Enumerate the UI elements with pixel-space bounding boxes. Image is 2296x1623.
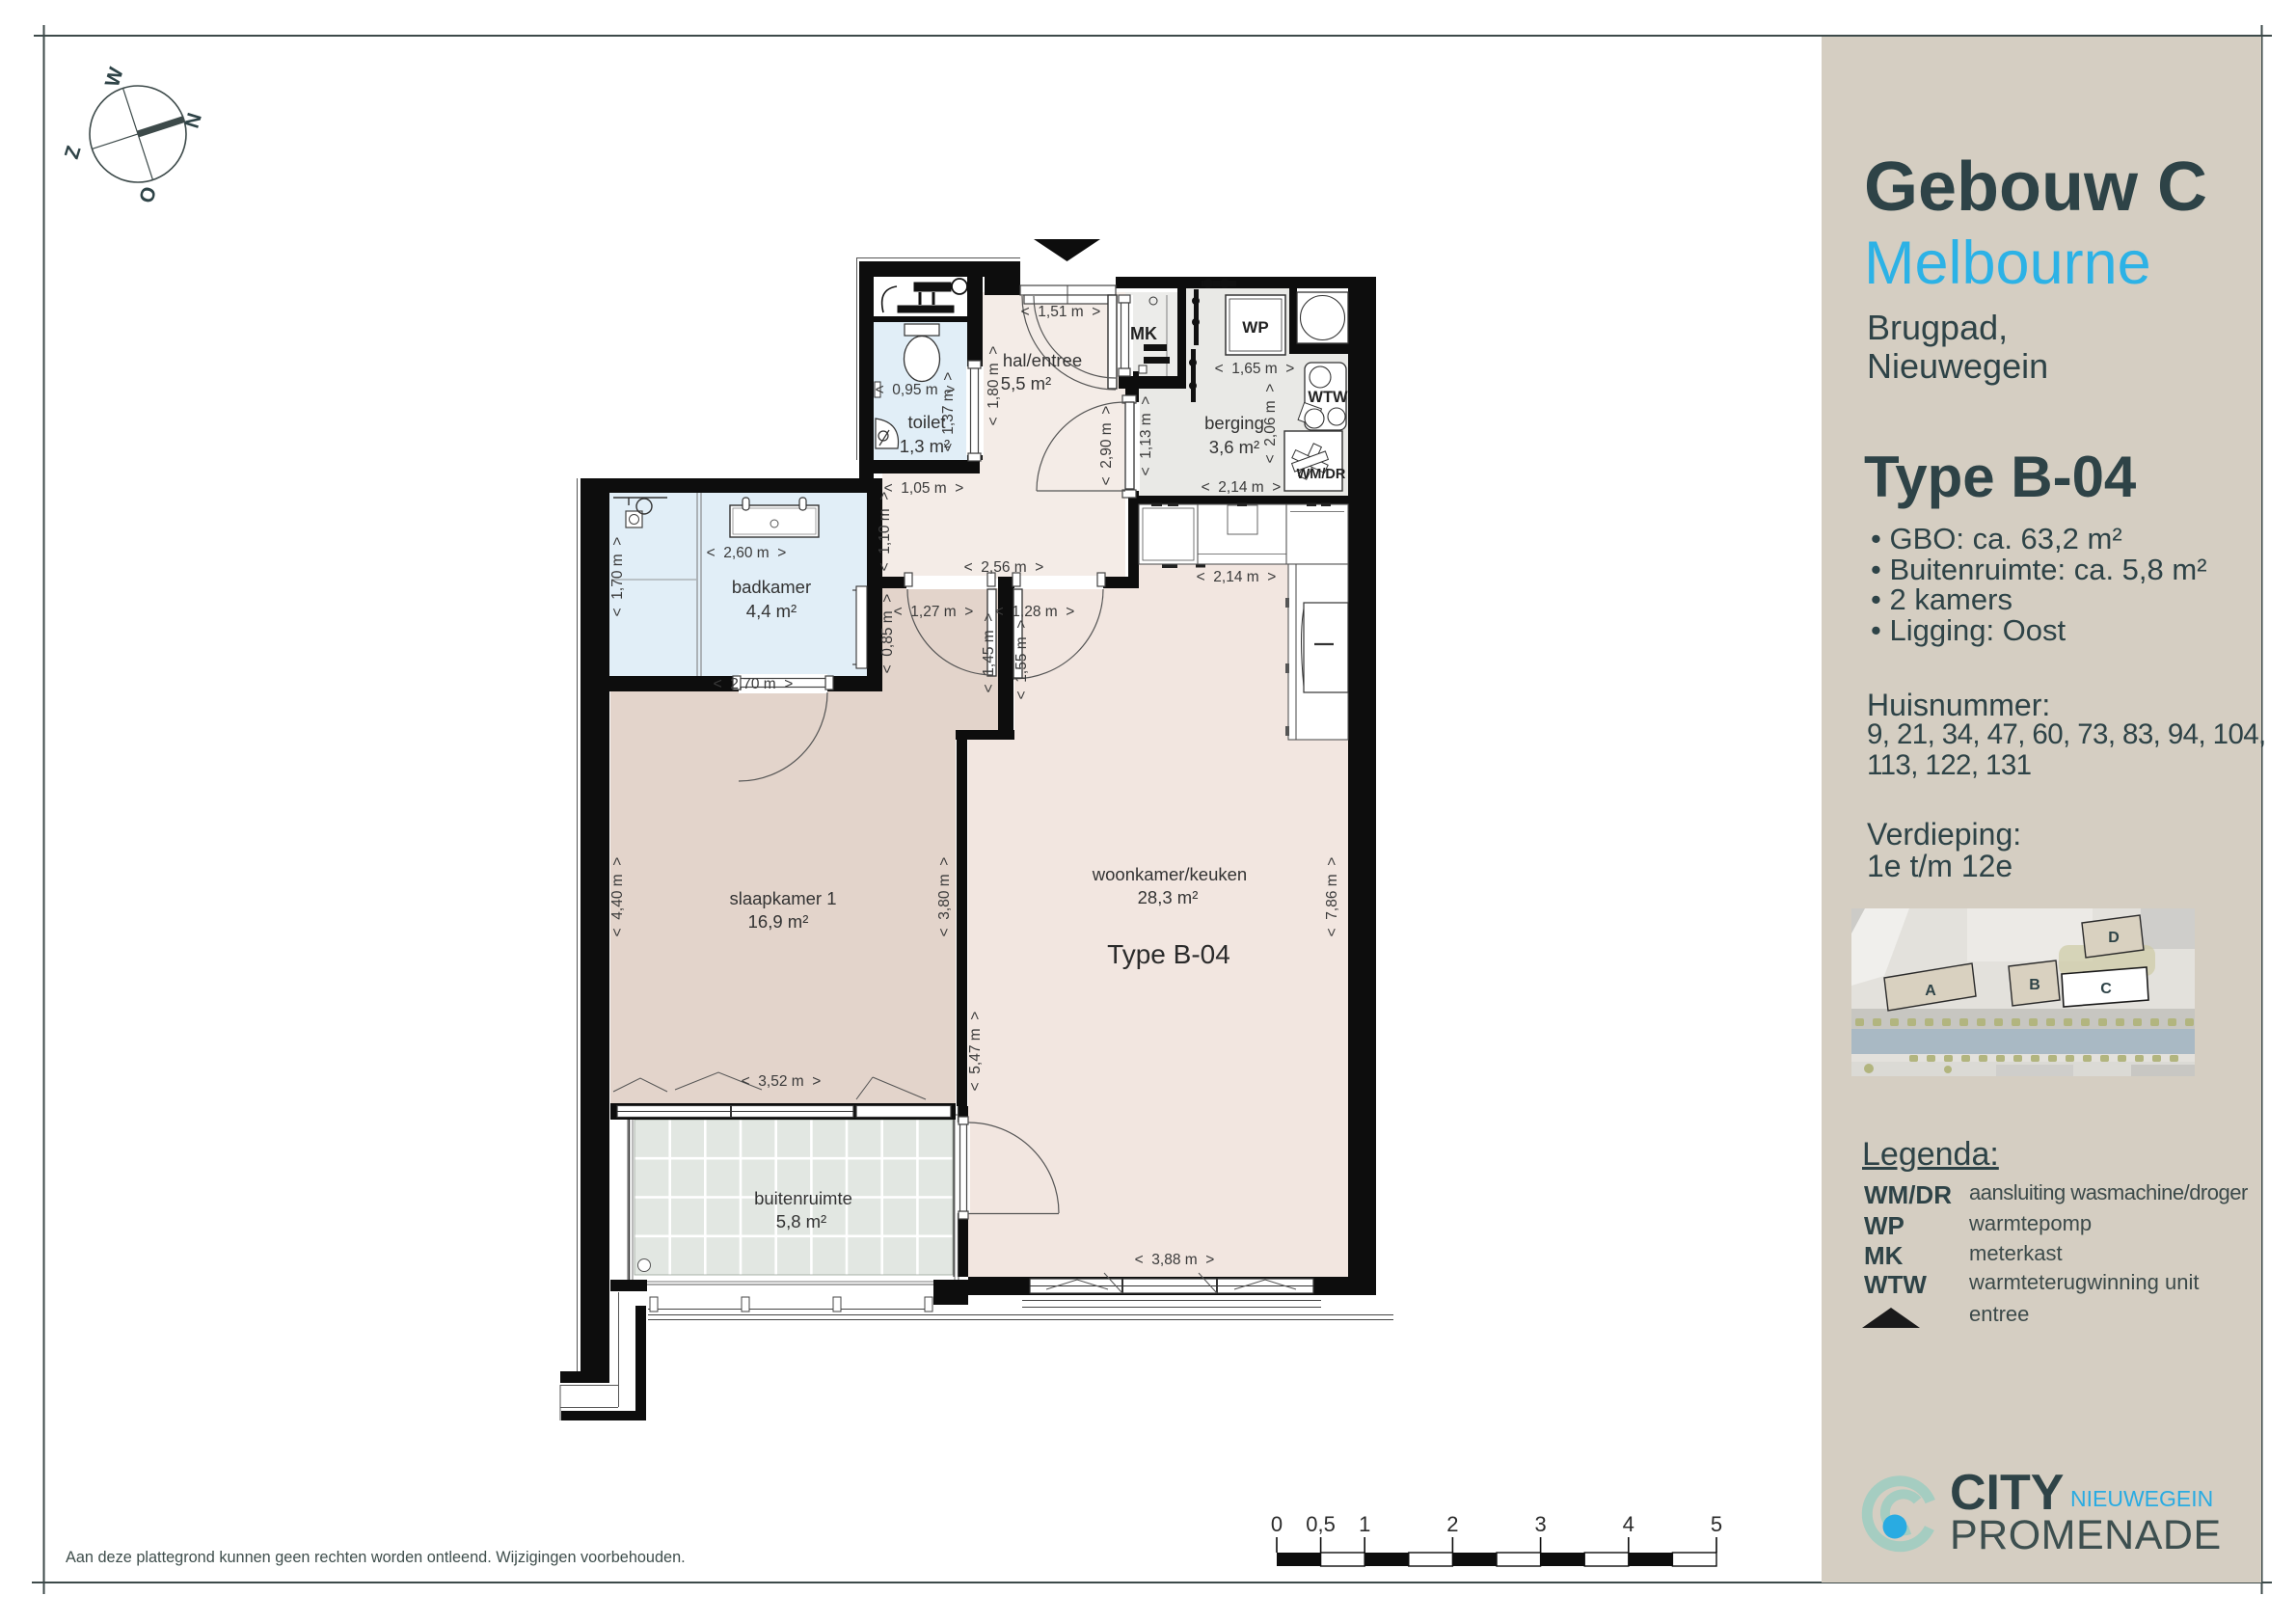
svg-text:B: B — [2029, 977, 2040, 993]
svg-text:< 1,70 m >: < 1,70 m > — [609, 537, 626, 617]
svg-text:< 1,13 m >: < 1,13 m > — [1138, 396, 1154, 476]
svg-text:< 7,86 m >: < 7,86 m > — [1324, 857, 1340, 937]
svg-text:1,3 m²: 1,3 m² — [900, 436, 950, 456]
svg-text:< 2,90 m >: < 2,90 m > — [1098, 406, 1115, 486]
svg-text:hal/entree: hal/entree — [1003, 350, 1082, 370]
svg-text:A: A — [1925, 983, 1936, 999]
svg-text:C: C — [2100, 981, 2112, 997]
svg-text:< 1,80 m >: < 1,80 m > — [986, 346, 1002, 426]
svg-text:toilet: toilet — [907, 412, 945, 432]
svg-text:5,5 m²: 5,5 m² — [1001, 373, 1051, 393]
svg-text:5,8 m²: 5,8 m² — [776, 1211, 826, 1231]
svg-text:1: 1 — [1359, 1512, 1370, 1536]
svg-text:WTW: WTW — [1308, 389, 1348, 406]
svg-text:< 2,06 m >: < 2,06 m > — [1262, 384, 1279, 464]
svg-text:4,4 m²: 4,4 m² — [746, 601, 797, 621]
svg-text:3,6 m²: 3,6 m² — [1209, 437, 1259, 457]
svg-text:< 0,85 m >: < 0,85 m > — [879, 594, 896, 674]
svg-text:< 1,27 m >: < 1,27 m > — [894, 604, 974, 620]
svg-text:NIEUWEGEIN: NIEUWEGEIN — [2070, 1486, 2213, 1511]
svg-text:< 3,80 m >: < 3,80 m > — [936, 857, 953, 937]
svg-text:< 1,05 m >: < 1,05 m > — [884, 480, 964, 497]
svg-text:< 2,70 m >: < 2,70 m > — [714, 676, 794, 692]
svg-text:< 2,14 m >: < 2,14 m > — [1202, 479, 1282, 496]
svg-text:Type B-04: Type B-04 — [1107, 939, 1230, 969]
svg-text:< 3,52 m >: < 3,52 m > — [742, 1073, 822, 1090]
svg-text:< 2,60 m >: < 2,60 m > — [707, 545, 787, 561]
svg-text:< 3,88 m >: < 3,88 m > — [1135, 1252, 1215, 1268]
svg-text:woonkamer/keuken: woonkamer/keuken — [1092, 864, 1247, 884]
svg-text:< 1,55 m >: < 1,55 m > — [1013, 620, 1030, 700]
svg-text:2: 2 — [1446, 1512, 1458, 1536]
svg-text:WM/DR: WM/DR — [1297, 467, 1346, 482]
svg-text:D: D — [2108, 930, 2120, 946]
svg-text:< 1,65 m >: < 1,65 m > — [1215, 361, 1295, 377]
svg-text:4: 4 — [1623, 1512, 1634, 1536]
svg-text:WP: WP — [1242, 318, 1268, 337]
svg-text:W: W — [101, 65, 128, 90]
svg-text:5: 5 — [1711, 1512, 1722, 1536]
svg-text:< 2,14 m >: < 2,14 m > — [1197, 569, 1277, 585]
svg-text:Aan deze plattegrond kunnen ge: Aan deze plattegrond kunnen geen rechten… — [66, 1549, 686, 1566]
svg-text:buitenruimte: buitenruimte — [754, 1188, 852, 1208]
svg-text:PROMENADE: PROMENADE — [1950, 1512, 2222, 1558]
svg-text:berging: berging — [1204, 413, 1264, 433]
svg-text:< 4,40 m >: < 4,40 m > — [609, 857, 626, 937]
svg-text:< 1,28 m >: < 1,28 m > — [995, 604, 1075, 620]
svg-text:MK: MK — [1130, 324, 1157, 343]
svg-text:0,5: 0,5 — [1306, 1512, 1336, 1536]
svg-text:slaapkamer 1: slaapkamer 1 — [729, 888, 836, 908]
svg-text:< 1,10 m >: < 1,10 m > — [877, 492, 893, 572]
svg-text:< 1,51 m >: < 1,51 m > — [1021, 304, 1101, 320]
svg-text:N: N — [181, 110, 206, 130]
svg-text:3: 3 — [1534, 1512, 1546, 1536]
svg-text:< 1,45 m >: < 1,45 m > — [981, 613, 997, 693]
svg-text:28,3 m²: 28,3 m² — [1138, 887, 1199, 907]
svg-text:0: 0 — [1271, 1512, 1283, 1536]
svg-text:Z: Z — [61, 143, 86, 161]
svg-text:badkamer: badkamer — [732, 577, 811, 597]
svg-text:< 2,56 m >: < 2,56 m > — [964, 559, 1044, 576]
svg-text:16,9 m²: 16,9 m² — [748, 911, 809, 932]
svg-text:O: O — [135, 184, 161, 205]
svg-text:< 5,47 m >: < 5,47 m > — [967, 1012, 984, 1092]
